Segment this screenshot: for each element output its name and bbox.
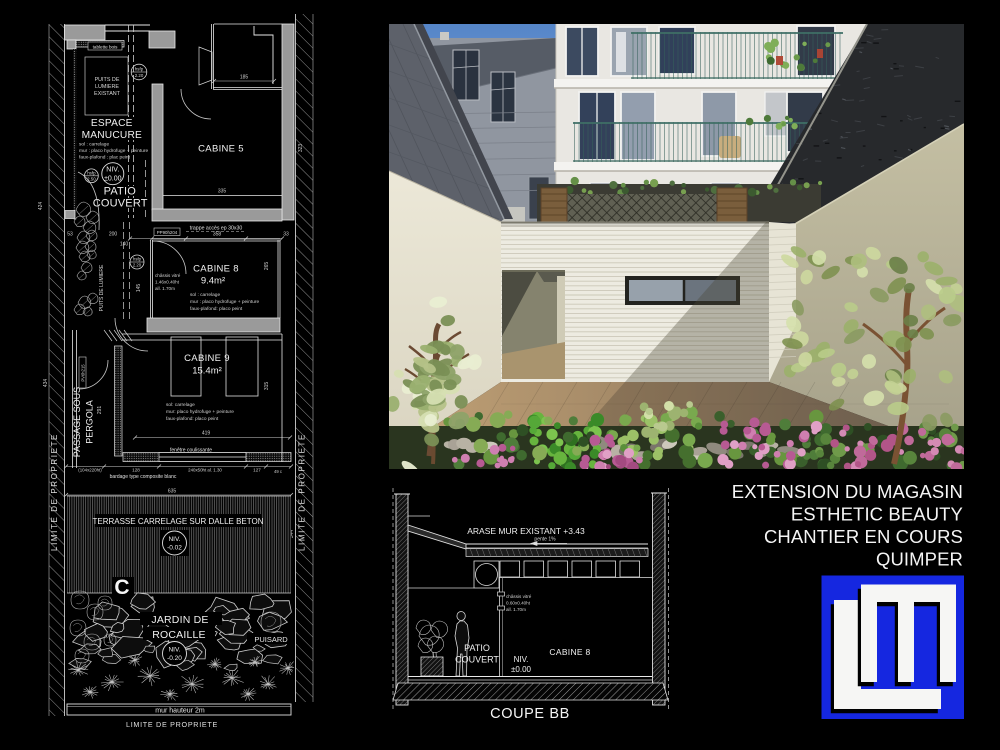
svg-text:CHANTIER EN COURS: CHANTIER EN COURS: [764, 526, 963, 547]
svg-text:PV6h215: PV6h215: [81, 364, 86, 382]
svg-text:128: 128: [132, 468, 140, 473]
svg-text:335: 335: [218, 189, 227, 195]
svg-text:sol: carrelage: sol: carrelage: [166, 402, 195, 408]
svg-text:all. 1.70m: all. 1.70m: [155, 286, 175, 291]
svg-text:358: 358: [213, 232, 222, 238]
svg-text:C: C: [114, 576, 129, 599]
svg-text:2.20: 2.20: [133, 263, 142, 268]
svg-text:mur hauteur 2m: mur hauteur 2m: [155, 708, 205, 715]
svg-text:PUITS DE LUMIERE: PUITS DE LUMIERE: [99, 264, 105, 311]
svg-text:0.60x0.40ht: 0.60x0.40ht: [506, 601, 531, 606]
svg-text:15.4m²: 15.4m²: [192, 366, 222, 377]
svg-text:COUPE BB: COUPE BB: [490, 706, 570, 722]
svg-text:(104x220ht): (104x220ht): [78, 468, 102, 473]
svg-text:NIV.: NIV.: [168, 647, 180, 654]
svg-text:COUVERT: COUVERT: [455, 655, 499, 665]
svg-text:49 c: 49 c: [274, 469, 282, 474]
svg-text:LIMITE DE PROPRIETE: LIMITE DE PROPRIETE: [126, 720, 218, 729]
svg-text:185: 185: [240, 75, 249, 81]
svg-text:EXTENSION DU MAGASIN: EXTENSION DU MAGASIN: [732, 481, 963, 502]
svg-text:240x50ht al. 1.30: 240x50ht al. 1.30: [188, 468, 222, 473]
svg-text:-0.20: -0.20: [167, 655, 182, 662]
svg-text:COUVERT: COUVERT: [93, 198, 148, 210]
svg-text:PP90h204: PP90h204: [157, 230, 178, 235]
svg-text:9.4m²: 9.4m²: [201, 276, 225, 287]
svg-text:châssis vitré: châssis vitré: [155, 273, 181, 278]
svg-text:mur : placo hydrofuge + peintu: mur : placo hydrofuge + peinture: [190, 299, 260, 305]
svg-text:pente 1%: pente 1%: [534, 537, 556, 543]
svg-text:LIMITE DE PROPRIETE: LIMITE DE PROPRIETE: [298, 433, 307, 551]
svg-text:JARDIN DE: JARDIN DE: [151, 614, 208, 626]
svg-text:mur : placo hydrofuge + peintu: mur : placo hydrofuge + peinture: [79, 148, 149, 154]
svg-text:145: 145: [136, 284, 142, 293]
svg-text:sol : carrelage: sol : carrelage: [79, 142, 109, 148]
svg-text:291: 291: [97, 406, 103, 415]
svg-text:PATIO: PATIO: [104, 186, 137, 198]
svg-text:127: 127: [253, 468, 261, 473]
svg-text:33: 33: [283, 232, 289, 238]
svg-text:±0.00: ±0.00: [511, 665, 532, 674]
svg-text:faux-plafond : plac peint: faux-plafond : plac peint: [79, 155, 131, 161]
svg-text:ESPACE: ESPACE: [91, 118, 133, 129]
svg-text:140: 140: [120, 242, 129, 248]
svg-text:PATIO: PATIO: [464, 643, 490, 653]
svg-text:2.20: 2.20: [135, 73, 144, 78]
svg-text:MANUCURE: MANUCURE: [82, 130, 142, 141]
svg-text:434: 434: [43, 379, 49, 388]
svg-text:200: 200: [109, 232, 118, 238]
svg-text:265: 265: [264, 262, 270, 271]
svg-text:PUISARD: PUISARD: [254, 635, 288, 644]
svg-text:TERRASSE CARRELAGE SUR DALLE B: TERRASSE CARRELAGE SUR DALLE BETON: [92, 517, 263, 526]
svg-text:ROCAILLE: ROCAILLE: [152, 629, 206, 641]
svg-text:-0.02: -0.02: [167, 545, 182, 552]
svg-text:323: 323: [298, 144, 304, 153]
svg-text:all. 1.70m: all. 1.70m: [506, 607, 526, 612]
svg-text:NIV.: NIV.: [514, 655, 529, 664]
svg-text:635: 635: [168, 489, 177, 495]
svg-text:LIMITE DE PROPRIETE: LIMITE DE PROPRIETE: [50, 433, 59, 551]
svg-text:PUITS DE: PUITS DE: [95, 77, 120, 83]
svg-text:hsfp: hsfp: [87, 170, 96, 175]
svg-text:châssis vitré: châssis vitré: [506, 594, 532, 599]
svg-text:NIV.: NIV.: [106, 167, 119, 174]
svg-text:CABINE 8: CABINE 8: [549, 647, 590, 657]
svg-text:ARASE MUR EXISTANT +3.43: ARASE MUR EXISTANT +3.43: [467, 526, 585, 536]
svg-text:424: 424: [38, 202, 44, 211]
svg-text:NIV.: NIV.: [168, 536, 180, 543]
svg-text:hsfp: hsfp: [135, 67, 144, 72]
svg-text:hsfp: hsfp: [133, 257, 142, 262]
svg-text:PASSAGE SOUS: PASSAGE SOUS: [72, 387, 82, 457]
svg-text:CABINE 8: CABINE 8: [193, 264, 239, 275]
svg-text:419: 419: [202, 431, 211, 437]
svg-text:±0.00: ±0.00: [104, 176, 122, 183]
svg-text:LUMIERE: LUMIERE: [95, 84, 119, 90]
svg-text:faux-plafond: placo peint: faux-plafond: placo peint: [190, 306, 243, 312]
svg-text:ESTHETIC BEAUTY: ESTHETIC BEAUTY: [791, 504, 963, 525]
svg-text:53: 53: [67, 232, 73, 238]
svg-text:EXISTANT: EXISTANT: [94, 91, 121, 97]
svg-text:CABINE 9: CABINE 9: [184, 353, 230, 364]
svg-text:sol : carrelage: sol : carrelage: [190, 292, 220, 298]
svg-text:315: 315: [264, 382, 270, 391]
svg-text:faux-plafond: placo peint: faux-plafond: placo peint: [166, 416, 219, 422]
svg-text:tablette bois: tablette bois: [93, 44, 118, 49]
svg-text:mur: placo hydrofuge + peintur: mur: placo hydrofuge + peinture: [166, 409, 234, 415]
svg-text:1.46x0.40ht: 1.46x0.40ht: [155, 280, 180, 285]
svg-text:bardage type composite blanc: bardage type composite blanc: [110, 474, 177, 480]
svg-text:QUIMPER: QUIMPER: [876, 549, 963, 570]
svg-text:CABINE 5: CABINE 5: [198, 144, 244, 155]
svg-text:PERGOLA: PERGOLA: [85, 400, 95, 444]
